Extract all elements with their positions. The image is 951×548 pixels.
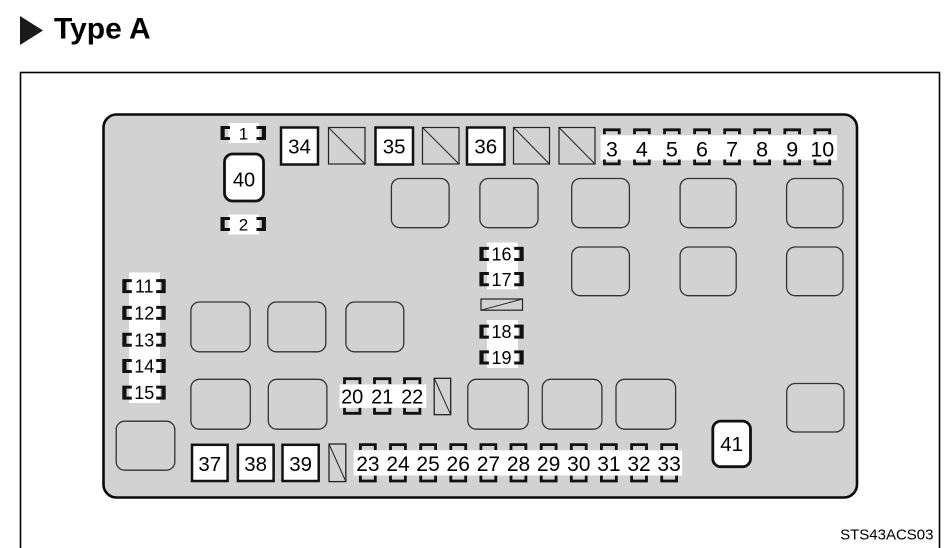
svg-text:33: 33 xyxy=(657,453,680,476)
svg-text:14: 14 xyxy=(134,357,154,377)
svg-text:20: 20 xyxy=(341,387,363,409)
svg-text:4: 4 xyxy=(636,138,648,162)
svg-text:40: 40 xyxy=(233,170,255,192)
svg-text:1: 1 xyxy=(239,125,248,144)
svg-text:32: 32 xyxy=(627,453,650,476)
svg-text:21: 21 xyxy=(371,387,393,409)
svg-text:8: 8 xyxy=(756,138,768,162)
svg-text:16: 16 xyxy=(491,245,511,265)
svg-text:30: 30 xyxy=(567,453,590,476)
svg-text:19: 19 xyxy=(491,348,511,368)
svg-text:15: 15 xyxy=(134,383,154,403)
svg-text:5: 5 xyxy=(666,138,678,162)
svg-text:34: 34 xyxy=(288,136,311,159)
svg-text:3: 3 xyxy=(606,138,618,162)
svg-text:7: 7 xyxy=(726,138,738,162)
svg-text:2: 2 xyxy=(239,216,248,235)
svg-text:38: 38 xyxy=(244,453,267,476)
svg-text:25: 25 xyxy=(416,453,439,476)
svg-text:35: 35 xyxy=(383,136,406,159)
svg-text:10: 10 xyxy=(810,138,834,162)
svg-text:37: 37 xyxy=(198,453,221,476)
svg-text:STS43ACS03: STS43ACS03 xyxy=(840,527,933,544)
svg-text:22: 22 xyxy=(401,387,423,409)
svg-text:Type A: Type A xyxy=(54,13,151,46)
svg-text:23: 23 xyxy=(356,453,379,476)
svg-text:36: 36 xyxy=(474,136,497,159)
svg-text:27: 27 xyxy=(477,453,500,476)
svg-text:26: 26 xyxy=(447,453,470,476)
svg-text:39: 39 xyxy=(289,453,312,476)
svg-text:28: 28 xyxy=(507,453,530,476)
svg-text:18: 18 xyxy=(491,322,511,342)
svg-text:9: 9 xyxy=(786,138,798,162)
svg-text:41: 41 xyxy=(720,433,743,456)
svg-text:31: 31 xyxy=(597,453,620,476)
svg-text:17: 17 xyxy=(491,270,511,290)
svg-text:24: 24 xyxy=(386,453,410,476)
svg-text:11: 11 xyxy=(135,277,154,297)
svg-text:13: 13 xyxy=(134,330,154,350)
svg-text:12: 12 xyxy=(134,304,154,324)
svg-text:6: 6 xyxy=(696,138,708,162)
svg-text:29: 29 xyxy=(537,453,560,476)
